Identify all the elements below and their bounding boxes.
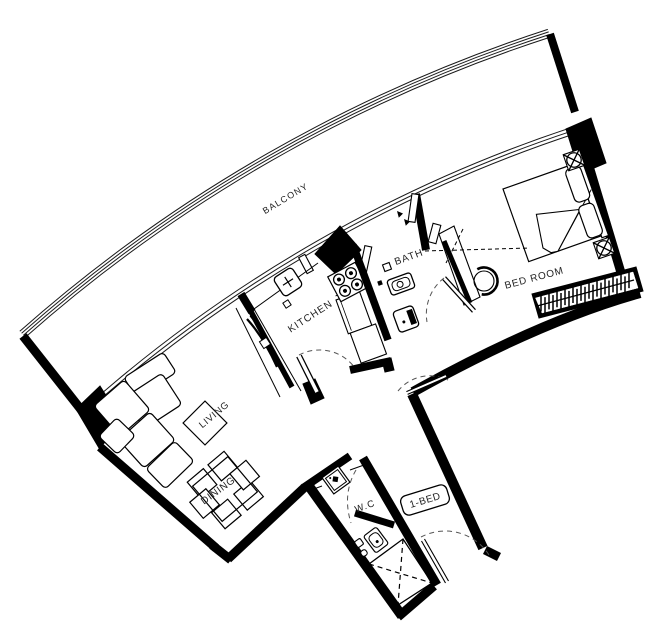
svg-text:BATH: BATH [393,247,425,268]
svg-text:1-BED: 1-BED [408,491,442,511]
svg-text:KITCHEN: KITCHEN [286,298,335,335]
svg-text:BALCONY: BALCONY [261,181,310,216]
